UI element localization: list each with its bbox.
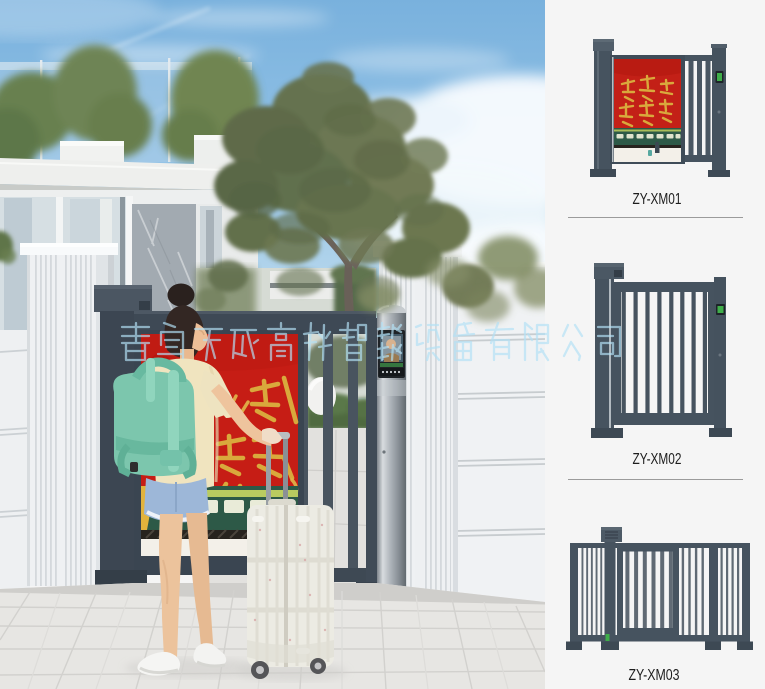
svg-text:ZY-XM03: ZY-XM03 (629, 667, 680, 684)
svg-text:ZY-XM02: ZY-XM02 (633, 451, 682, 468)
svg-text:ZY-XM01: ZY-XM01 (633, 191, 682, 208)
